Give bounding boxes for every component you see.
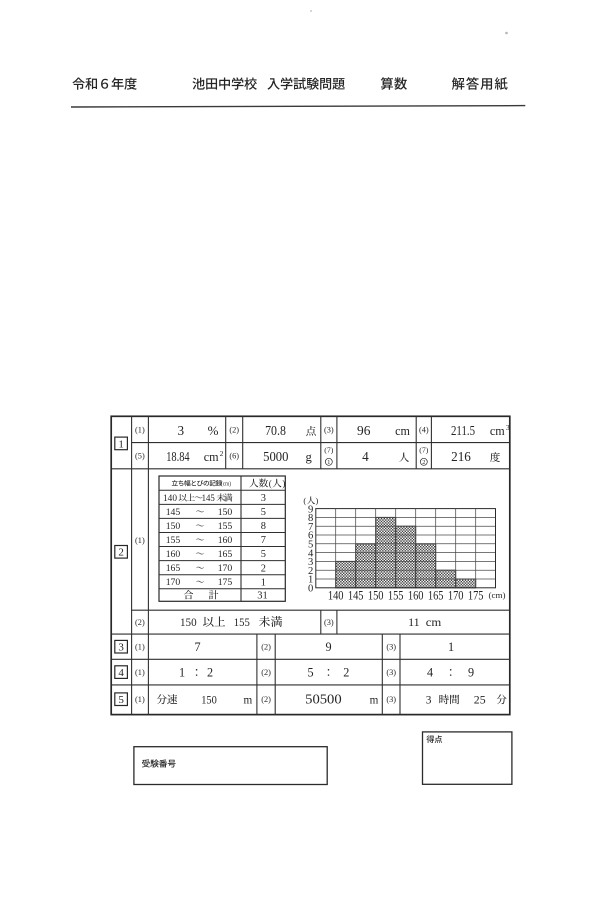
svg-text:(7): (7) [419,446,428,455]
svg-text:3: 3 [118,642,124,654]
svg-text:(: ( [303,497,306,506]
svg-text:(3): (3) [324,618,334,627]
svg-text:145: 145 [348,589,364,603]
svg-text:5: 5 [118,694,124,706]
svg-text:165: 165 [218,549,233,560]
svg-text:11: 11 [408,617,420,629]
svg-text:(2): (2) [261,695,271,704]
svg-text:140: 140 [163,493,177,504]
svg-text:(7): (7) [324,446,333,455]
svg-text:(: ( [269,479,272,489]
svg-text:(1): (1) [135,536,145,545]
svg-text:175: 175 [218,577,233,588]
svg-text:2: 2 [343,665,349,679]
svg-text:4: 4 [427,665,433,679]
svg-text:3: 3 [178,423,185,438]
svg-text:2: 2 [118,547,124,559]
svg-text:160: 160 [408,589,424,603]
svg-text:25: 25 [474,694,486,706]
svg-text:160: 160 [218,535,233,546]
svg-text:(3): (3) [386,643,396,652]
svg-text:cm: cm [426,617,442,629]
svg-text:%: % [208,423,219,438]
svg-text:31: 31 [257,591,268,602]
svg-text:155: 155 [388,589,404,603]
svg-text:4: 4 [118,667,124,679]
svg-text:(1): (1) [135,643,145,652]
svg-text:(2): (2) [229,425,239,434]
svg-text:155: 155 [218,521,233,532]
svg-text:cm: cm [490,424,505,438]
svg-text:(1): (1) [135,425,145,434]
svg-text:cm: cm [204,450,219,464]
svg-text:4: 4 [362,449,369,464]
svg-text:1: 1 [118,438,124,450]
svg-text:170: 170 [218,563,233,574]
svg-text:(1): (1) [135,668,145,677]
svg-text:g: g [306,450,313,464]
svg-text:140: 140 [328,589,344,603]
svg-text:2: 2 [220,449,224,458]
svg-text:(6): (6) [229,452,239,461]
svg-text:145: 145 [166,507,181,518]
svg-text:175: 175 [468,589,484,603]
svg-text:(2): (2) [261,643,271,652]
svg-text:(3): (3) [386,668,396,677]
svg-text:70.8: 70.8 [265,423,286,438]
svg-text:(cm): (cm) [221,481,231,488]
svg-text:1: 1 [448,640,454,654]
svg-text:150: 150 [180,617,197,629]
svg-text:165: 165 [166,563,181,574]
svg-text:1: 1 [327,459,330,466]
svg-text:m: m [370,694,379,706]
svg-text:(4): (4) [419,425,429,434]
svg-text:m: m [244,694,253,706]
svg-text:5: 5 [261,549,266,560]
svg-text:145: 145 [202,493,215,504]
svg-text:160: 160 [166,549,181,560]
svg-text:(3): (3) [386,695,396,704]
svg-text:1: 1 [179,665,185,679]
svg-text:96: 96 [357,423,371,438]
svg-text:7: 7 [195,640,201,654]
svg-text:3: 3 [426,694,432,706]
svg-text:165: 165 [428,589,444,603]
svg-text:): ) [316,497,319,506]
svg-text:216: 216 [451,449,471,464]
svg-text:9: 9 [326,640,332,654]
svg-text:(cm): (cm) [489,591,506,600]
svg-text:(2): (2) [261,668,271,677]
svg-text:8: 8 [261,521,266,532]
svg-text:9: 9 [308,504,313,515]
svg-text:150: 150 [218,507,233,518]
svg-text:5: 5 [307,665,313,679]
svg-text:1: 1 [261,577,266,588]
svg-text:): ) [282,479,285,489]
svg-text:(3): (3) [324,425,334,434]
svg-text:2: 2 [422,459,425,466]
svg-text:150: 150 [166,521,181,532]
svg-text:(2): (2) [135,618,145,627]
svg-text:18.84: 18.84 [166,449,190,464]
svg-text:3: 3 [506,423,510,432]
svg-text:(1): (1) [135,695,145,704]
svg-text:7: 7 [261,535,266,546]
svg-text:150: 150 [201,694,217,706]
svg-text:211.5: 211.5 [451,423,475,438]
svg-text:155: 155 [234,617,250,629]
svg-text:50500: 50500 [305,692,342,707]
svg-text:2: 2 [261,563,266,574]
svg-text:5000: 5000 [263,449,289,464]
svg-text:170: 170 [166,577,181,588]
svg-text:150: 150 [368,589,384,603]
svg-text:(5): (5) [135,452,145,461]
svg-text:cm: cm [395,424,410,438]
svg-text:2: 2 [207,665,213,679]
svg-text:9: 9 [468,665,474,679]
svg-text:3: 3 [261,493,266,504]
svg-text:155: 155 [166,535,181,546]
svg-text:170: 170 [448,589,464,603]
svg-text:5: 5 [261,507,266,518]
